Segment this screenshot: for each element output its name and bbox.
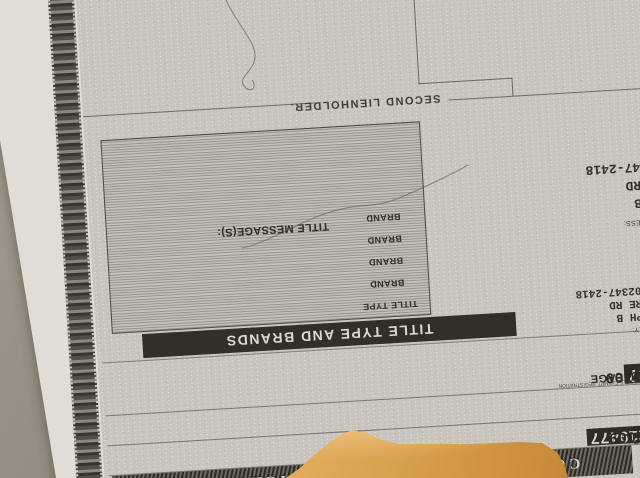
field-new-used: NEW/USED USED	[629, 381, 640, 414]
field-value: 11/06/2009	[608, 423, 640, 444]
brand-label: BRAND	[366, 212, 401, 224]
field-prev-title-state: PREV. TITLE STATE MA	[622, 328, 640, 384]
title-messages-label: TITLE MESSAGE(S):	[217, 220, 330, 239]
title-document-upside-down: MA B 71,840/ B ®Storage/Paper-able-Co 12…	[0, 0, 640, 478]
brand-label: BRAND	[370, 277, 405, 289]
brand-label: BRAND	[367, 234, 402, 246]
address-line: MA 02347-2418	[585, 157, 640, 178]
title-type-brands-box: TITLE TYPE BRAND BRAND BRAND BRAND TITLE…	[100, 121, 431, 334]
owner-address-block: ME AND ADDRESS: RALPH B SHORE RD MA 0234…	[439, 152, 640, 237]
brand-label: BRAND	[368, 256, 403, 268]
mail-address-label: S ADDRESS ONLY:	[632, 322, 640, 333]
address-line: RALPH B	[634, 192, 640, 210]
title-type-label: TITLE TYPE	[362, 299, 418, 312]
address-line: SHORE RD	[625, 174, 640, 193]
owner-address-label: ME AND ADDRESS:	[623, 215, 640, 226]
photo-of-vehicle-title: MA B 71,840/ B ®Storage/Paper-able-Co 12…	[0, 0, 640, 478]
